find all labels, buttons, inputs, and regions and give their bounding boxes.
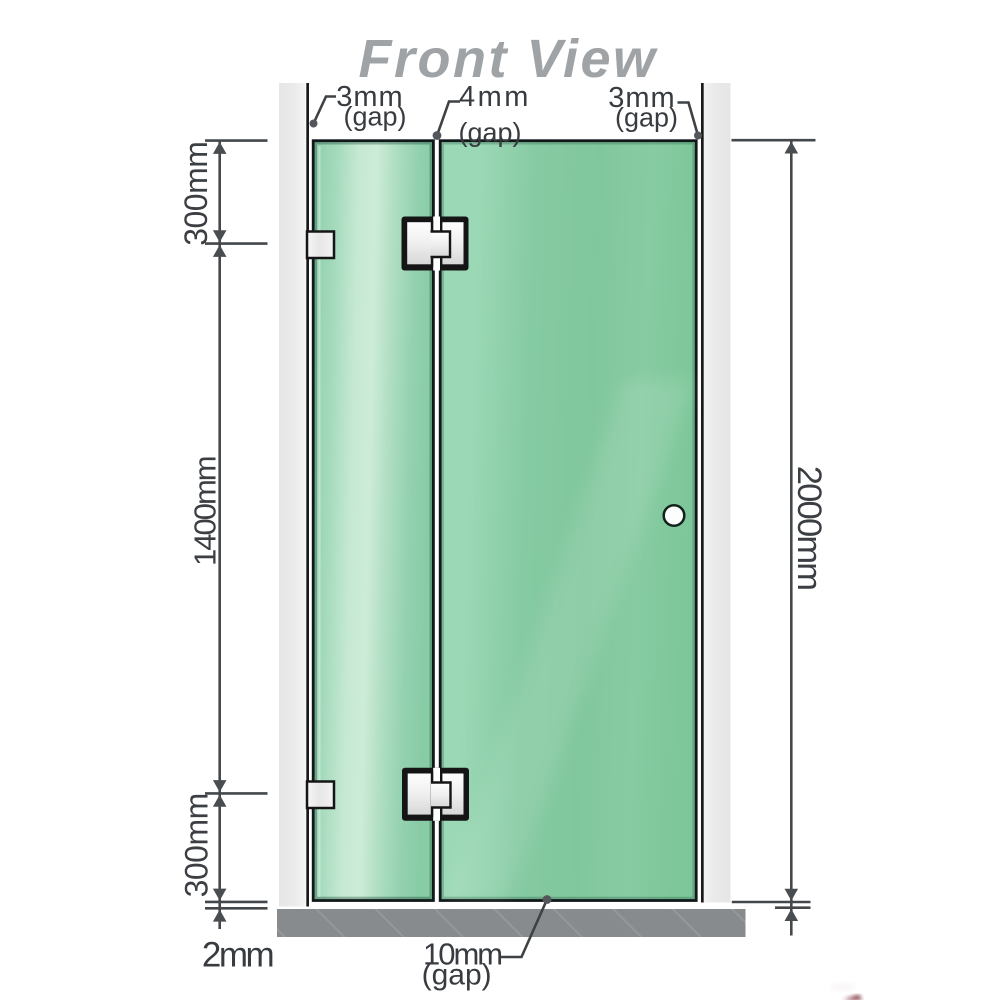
svg-text:300mm: 300mm	[179, 793, 215, 897]
svg-text:4mm: 4mm	[459, 81, 531, 113]
svg-text:(gap): (gap)	[343, 102, 406, 132]
svg-text:2mm: 2mm	[202, 936, 273, 975]
svg-text:Front View: Front View	[358, 29, 658, 89]
svg-text:(gap): (gap)	[615, 103, 678, 133]
svg-text:2000mm: 2000mm	[790, 466, 828, 589]
svg-text:1400mm: 1400mm	[188, 457, 223, 566]
svg-text:(gap): (gap)	[458, 118, 521, 148]
svg-text:300mm: 300mm	[178, 142, 214, 246]
svg-text:(gap): (gap)	[422, 959, 492, 992]
